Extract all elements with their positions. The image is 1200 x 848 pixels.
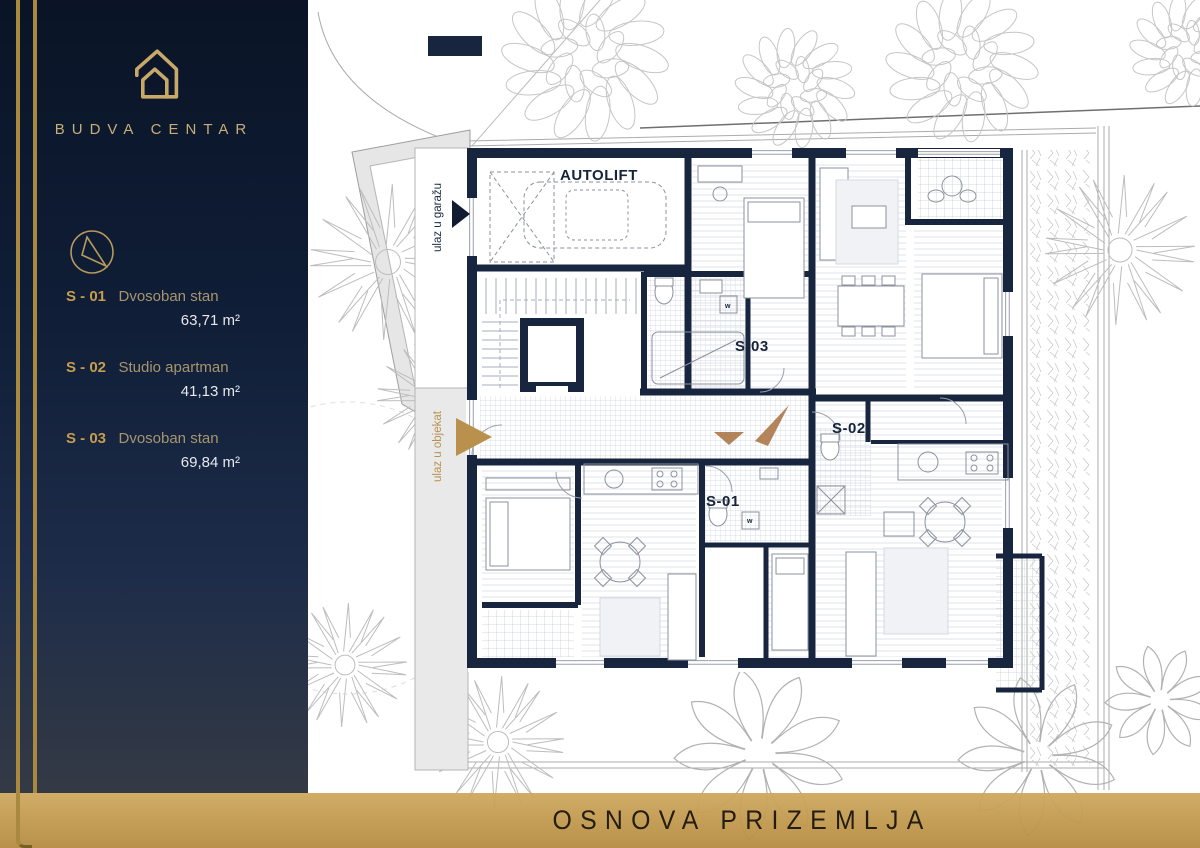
unit-id: S - 03 bbox=[66, 430, 106, 447]
unit-item-s03: S - 03 Dvosoban stan 69,84 m² bbox=[66, 428, 246, 476]
brand-name: BUDVA CENTAR bbox=[0, 121, 308, 138]
autolift-label: AUTOLIFT bbox=[560, 167, 638, 184]
unit-area: 69,84 m² bbox=[66, 450, 246, 476]
gold-accent-line bbox=[16, 0, 32, 848]
unit-id: S - 01 bbox=[66, 288, 106, 305]
north-arrow-icon bbox=[68, 228, 116, 276]
unit-type: Dvosoban stan bbox=[118, 288, 218, 305]
elevator bbox=[520, 318, 584, 394]
unit-item-s01: S - 01 Dvosoban stan 63,71 m² bbox=[66, 286, 246, 334]
floor-plan-canvas: ulaz u garažu ulaz u objekat AUTOLIFT S-… bbox=[308, 0, 1200, 848]
unit-label-s02: S-02 bbox=[832, 420, 866, 437]
unit-id: S - 02 bbox=[66, 359, 106, 376]
footer-bar: OSNOVA PRIZEMLJA bbox=[0, 793, 1200, 848]
washer-label-1: w bbox=[724, 303, 731, 310]
garage-entrance-label: ulaz u garažu bbox=[432, 183, 444, 252]
gold-accent-line-2 bbox=[33, 0, 37, 793]
unit-area: 63,71 m² bbox=[66, 308, 246, 334]
plan-title: OSNOVA PRIZEMLJA bbox=[553, 805, 932, 836]
brand-house-icon bbox=[126, 44, 186, 104]
washer-label-2: w bbox=[746, 518, 753, 525]
unit-item-s02: S - 02 Studio apartman 41,13 m² bbox=[66, 357, 246, 405]
sidebar: BUDVA CENTAR S - 01 Dvosoban stan 63,71 … bbox=[0, 0, 308, 793]
building-entrance-label: ulaz u objekat bbox=[432, 410, 444, 482]
unit-type: Studio apartman bbox=[118, 359, 228, 376]
legend-chip bbox=[428, 36, 482, 56]
unit-label-s01: S-01 bbox=[706, 493, 740, 510]
unit-type: Dvosoban stan bbox=[118, 430, 218, 447]
unit-list: S - 01 Dvosoban stan 63,71 m² S - 02 Stu… bbox=[66, 286, 246, 499]
unit-label-s03: S-03 bbox=[735, 338, 769, 355]
unit-area: 41,13 m² bbox=[66, 379, 246, 405]
page: ulaz u garažu ulaz u objekat AUTOLIFT S-… bbox=[0, 0, 1200, 848]
